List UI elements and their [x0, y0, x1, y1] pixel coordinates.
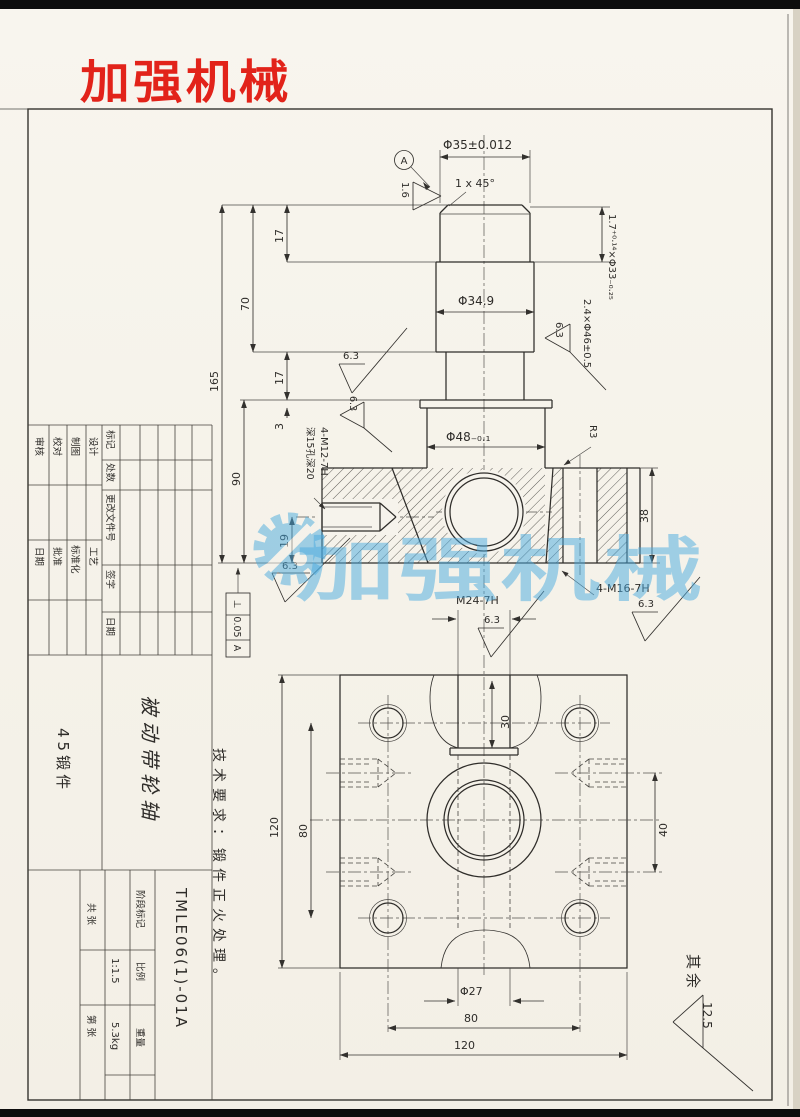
- groove-1-7-dia33: 1.7⁺⁰·¹⁴×Φ33₋₀.₂₅: [606, 214, 617, 300]
- dim-80-left: 80: [297, 824, 310, 838]
- tap-4-m12: 4-M12-7H: [318, 427, 329, 476]
- finish-6-3-groove: 6.3: [553, 322, 564, 338]
- dim-r3: R3: [587, 425, 598, 438]
- finish-6-3-m24: 6.3: [484, 615, 500, 626]
- dim-dia27: Φ27: [460, 985, 483, 998]
- gdt-datum-ref: A: [231, 645, 242, 652]
- finish-1-6: 1.6: [399, 182, 410, 198]
- drawing-sheet: 加强机械: [0, 0, 800, 1117]
- tb-docno-label: 更改文件号: [104, 494, 116, 542]
- tb-draft-label: 制图: [69, 437, 81, 456]
- dim-17a: 17: [273, 229, 286, 243]
- tb-check-label: 校对: [51, 437, 63, 457]
- tb-scale-value: 1:1.5: [109, 958, 120, 984]
- dim-70: 70: [239, 297, 252, 311]
- tb-material: 45锻件: [54, 728, 72, 793]
- rest-surfaces-value: 12.5: [700, 1002, 714, 1029]
- dim-17b: 17: [273, 371, 286, 385]
- tb-mark-label: 标记: [104, 430, 116, 450]
- dim-165: 165: [208, 371, 221, 392]
- dim-40: 40: [657, 823, 670, 837]
- tb-design-label: 设计: [87, 437, 99, 457]
- tb-stage-label: 阶段标记: [134, 890, 146, 929]
- technical-notes: 技术要求：锻件正火处理。 其余 12.5: [210, 748, 753, 1091]
- finish-6-3-m12: 6.3: [347, 396, 358, 411]
- finish-6-3-collar: 6.3: [343, 351, 359, 362]
- groove-2-4-dia46: 2.4×Φ46±0.5: [581, 299, 592, 368]
- tb-date-label: 日期: [104, 617, 115, 636]
- watermark-text: 加强机械: [296, 514, 705, 615]
- tb-sheet-no: 第 张: [85, 1015, 97, 1038]
- tap-4-m12-depth: 深15孔深20: [304, 427, 315, 480]
- tb-weight-value: 5.3kg: [109, 1022, 120, 1050]
- side-tapped-holes-hidden: [340, 759, 627, 886]
- tb-std-label: 标准化: [69, 545, 81, 574]
- tb-craft-label: 工艺: [87, 547, 98, 566]
- dim-120-bottom: 120: [454, 1039, 475, 1052]
- dim-dia349: Φ34.9: [458, 294, 494, 308]
- tb-sheets-total: 共 张: [85, 903, 96, 926]
- tb-weight-label: 重量: [134, 1028, 146, 1048]
- dim-30: 30: [499, 715, 512, 729]
- tb-drawing-number: TMLE06(1)-01A: [172, 887, 190, 1029]
- gdt-tolerance-value: 0.05: [231, 616, 242, 637]
- tb-qty-label: 处数: [104, 463, 116, 483]
- tb-date2-label: 日期: [33, 547, 44, 566]
- rest-surfaces-label: 其余: [684, 954, 702, 992]
- tb-sign-label: 签字: [104, 570, 116, 589]
- tb-audit-label: 审核: [33, 437, 45, 457]
- dim-dia35: Φ35±0.012: [443, 138, 512, 152]
- dim-chamfer: 1 x 45°: [455, 177, 495, 190]
- tb-part-name: 被动带轮轴: [138, 695, 162, 825]
- title-block: 标记 处数 更改文件号 签字 日期 设计 制图 校对 审核 工艺 标准化 批准 …: [28, 425, 212, 1100]
- tb-scale-label: 比例: [134, 962, 146, 981]
- dim-3: 3: [273, 423, 286, 430]
- dim-120-left: 120: [268, 817, 281, 838]
- bottom-view: 30 120 80 40 Φ27 80 120: [268, 655, 670, 1060]
- dim-90: 90: [230, 472, 243, 486]
- datum-flag-a: A: [401, 156, 408, 167]
- tb-approve-label: 批准: [51, 547, 63, 567]
- dim-dia48: Φ48₋₀.₁: [446, 430, 491, 444]
- gdt-perpendicular-symbol: ⊥: [231, 600, 242, 609]
- dim-80-bottom: 80: [464, 1012, 478, 1025]
